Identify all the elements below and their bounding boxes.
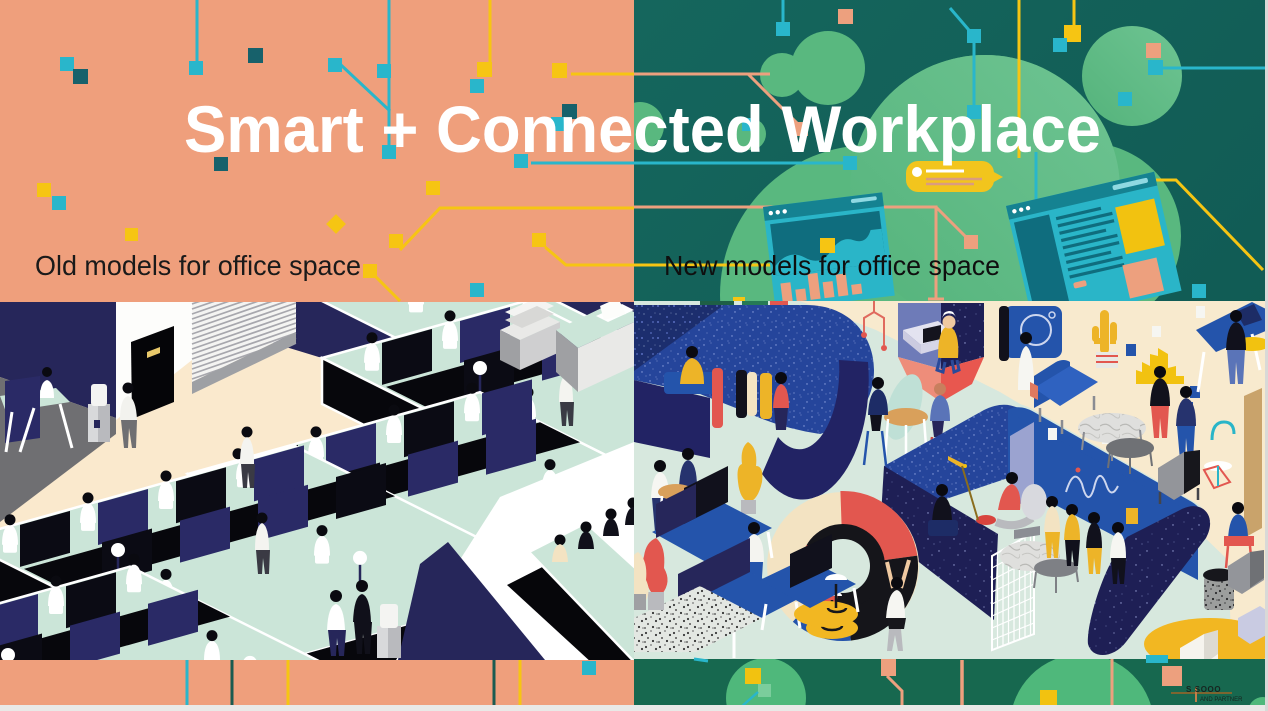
svg-text:S SOOO: S SOOO (1186, 685, 1221, 694)
svg-text:Old models for office space: Old models for office space (35, 250, 361, 281)
svg-text:Smart + Connected Workplace: Smart + Connected Workplace (184, 92, 1101, 166)
svg-text:AND PARTNER: AND PARTNER (1200, 697, 1243, 703)
svg-text:New models for office space: New models for office space (664, 250, 1000, 281)
